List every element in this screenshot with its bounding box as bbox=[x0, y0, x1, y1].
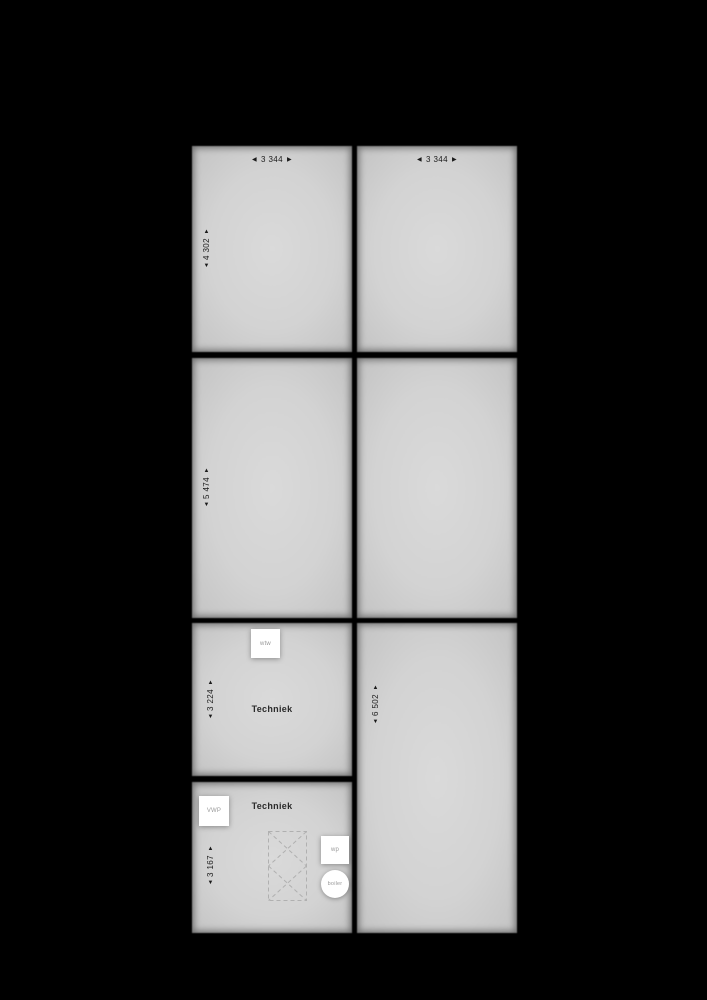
arrow-down-icon: ▼ bbox=[208, 880, 214, 886]
arrow-down-icon: ▼ bbox=[204, 263, 210, 269]
boiler-unit-label: boiler bbox=[328, 881, 343, 887]
arrow-down-icon: ▼ bbox=[373, 719, 379, 725]
height-dimension-techniek-lower: ▲ 3 167 ▼ bbox=[206, 846, 215, 886]
wp-unit-box: wp bbox=[321, 836, 349, 864]
width-dimension-top-left: ◀ 3 344 ▶ bbox=[192, 155, 352, 164]
dimension-value: 3 344 bbox=[261, 155, 283, 164]
wp-unit-label: wp bbox=[331, 847, 339, 853]
dimension-value: 3 167 bbox=[206, 855, 215, 877]
vwp-unit-label: VWP bbox=[207, 808, 221, 814]
arrow-up-icon: ▲ bbox=[204, 229, 210, 235]
arrow-up-icon: ▲ bbox=[208, 846, 214, 852]
arrow-down-icon: ▼ bbox=[204, 502, 210, 508]
vwp-unit-box: VWP bbox=[199, 796, 229, 826]
arrow-right-icon: ▶ bbox=[452, 157, 457, 163]
height-dimension-right-tall: ▲ 6 502 ▼ bbox=[371, 685, 380, 725]
arrow-up-icon: ▲ bbox=[373, 685, 379, 691]
annotations-layer: ◀ 3 344 ▶ ◀ 3 344 ▶ ▲ 4 302 ▼ ▲ 5 474 ▼ … bbox=[192, 146, 517, 933]
arrow-down-icon: ▼ bbox=[208, 714, 214, 720]
dashed-reservation-symbol bbox=[268, 831, 307, 901]
wtw-unit-box: wtw bbox=[251, 629, 280, 658]
room-name-techniek-upper: Techniek bbox=[192, 704, 352, 714]
arrow-up-icon: ▲ bbox=[208, 680, 214, 686]
arrow-left-icon: ◀ bbox=[252, 157, 257, 163]
arrow-up-icon: ▲ bbox=[204, 468, 210, 474]
boiler-unit-circle: boiler bbox=[321, 870, 349, 898]
dimension-value: 3 344 bbox=[426, 155, 448, 164]
wtw-unit-label: wtw bbox=[260, 641, 271, 647]
dimension-value: 6 502 bbox=[371, 694, 380, 716]
height-dimension-top-left: ▲ 4 302 ▼ bbox=[202, 229, 211, 269]
arrow-right-icon: ▶ bbox=[287, 157, 292, 163]
dimension-value: 4 302 bbox=[202, 238, 211, 260]
floor-plan: ◀ 3 344 ▶ ◀ 3 344 ▶ ▲ 4 302 ▼ ▲ 5 474 ▼ … bbox=[192, 146, 517, 933]
width-dimension-top-right: ◀ 3 344 ▶ bbox=[357, 155, 517, 164]
dimension-value: 5 474 bbox=[202, 477, 211, 499]
arrow-left-icon: ◀ bbox=[417, 157, 422, 163]
height-dimension-mid-left: ▲ 5 474 ▼ bbox=[202, 468, 211, 508]
height-dimension-techniek-upper: ▲ 3 224 ▼ bbox=[206, 680, 215, 720]
floor-plan-canvas: ◀ 3 344 ▶ ◀ 3 344 ▶ ▲ 4 302 ▼ ▲ 5 474 ▼ … bbox=[0, 0, 707, 1000]
